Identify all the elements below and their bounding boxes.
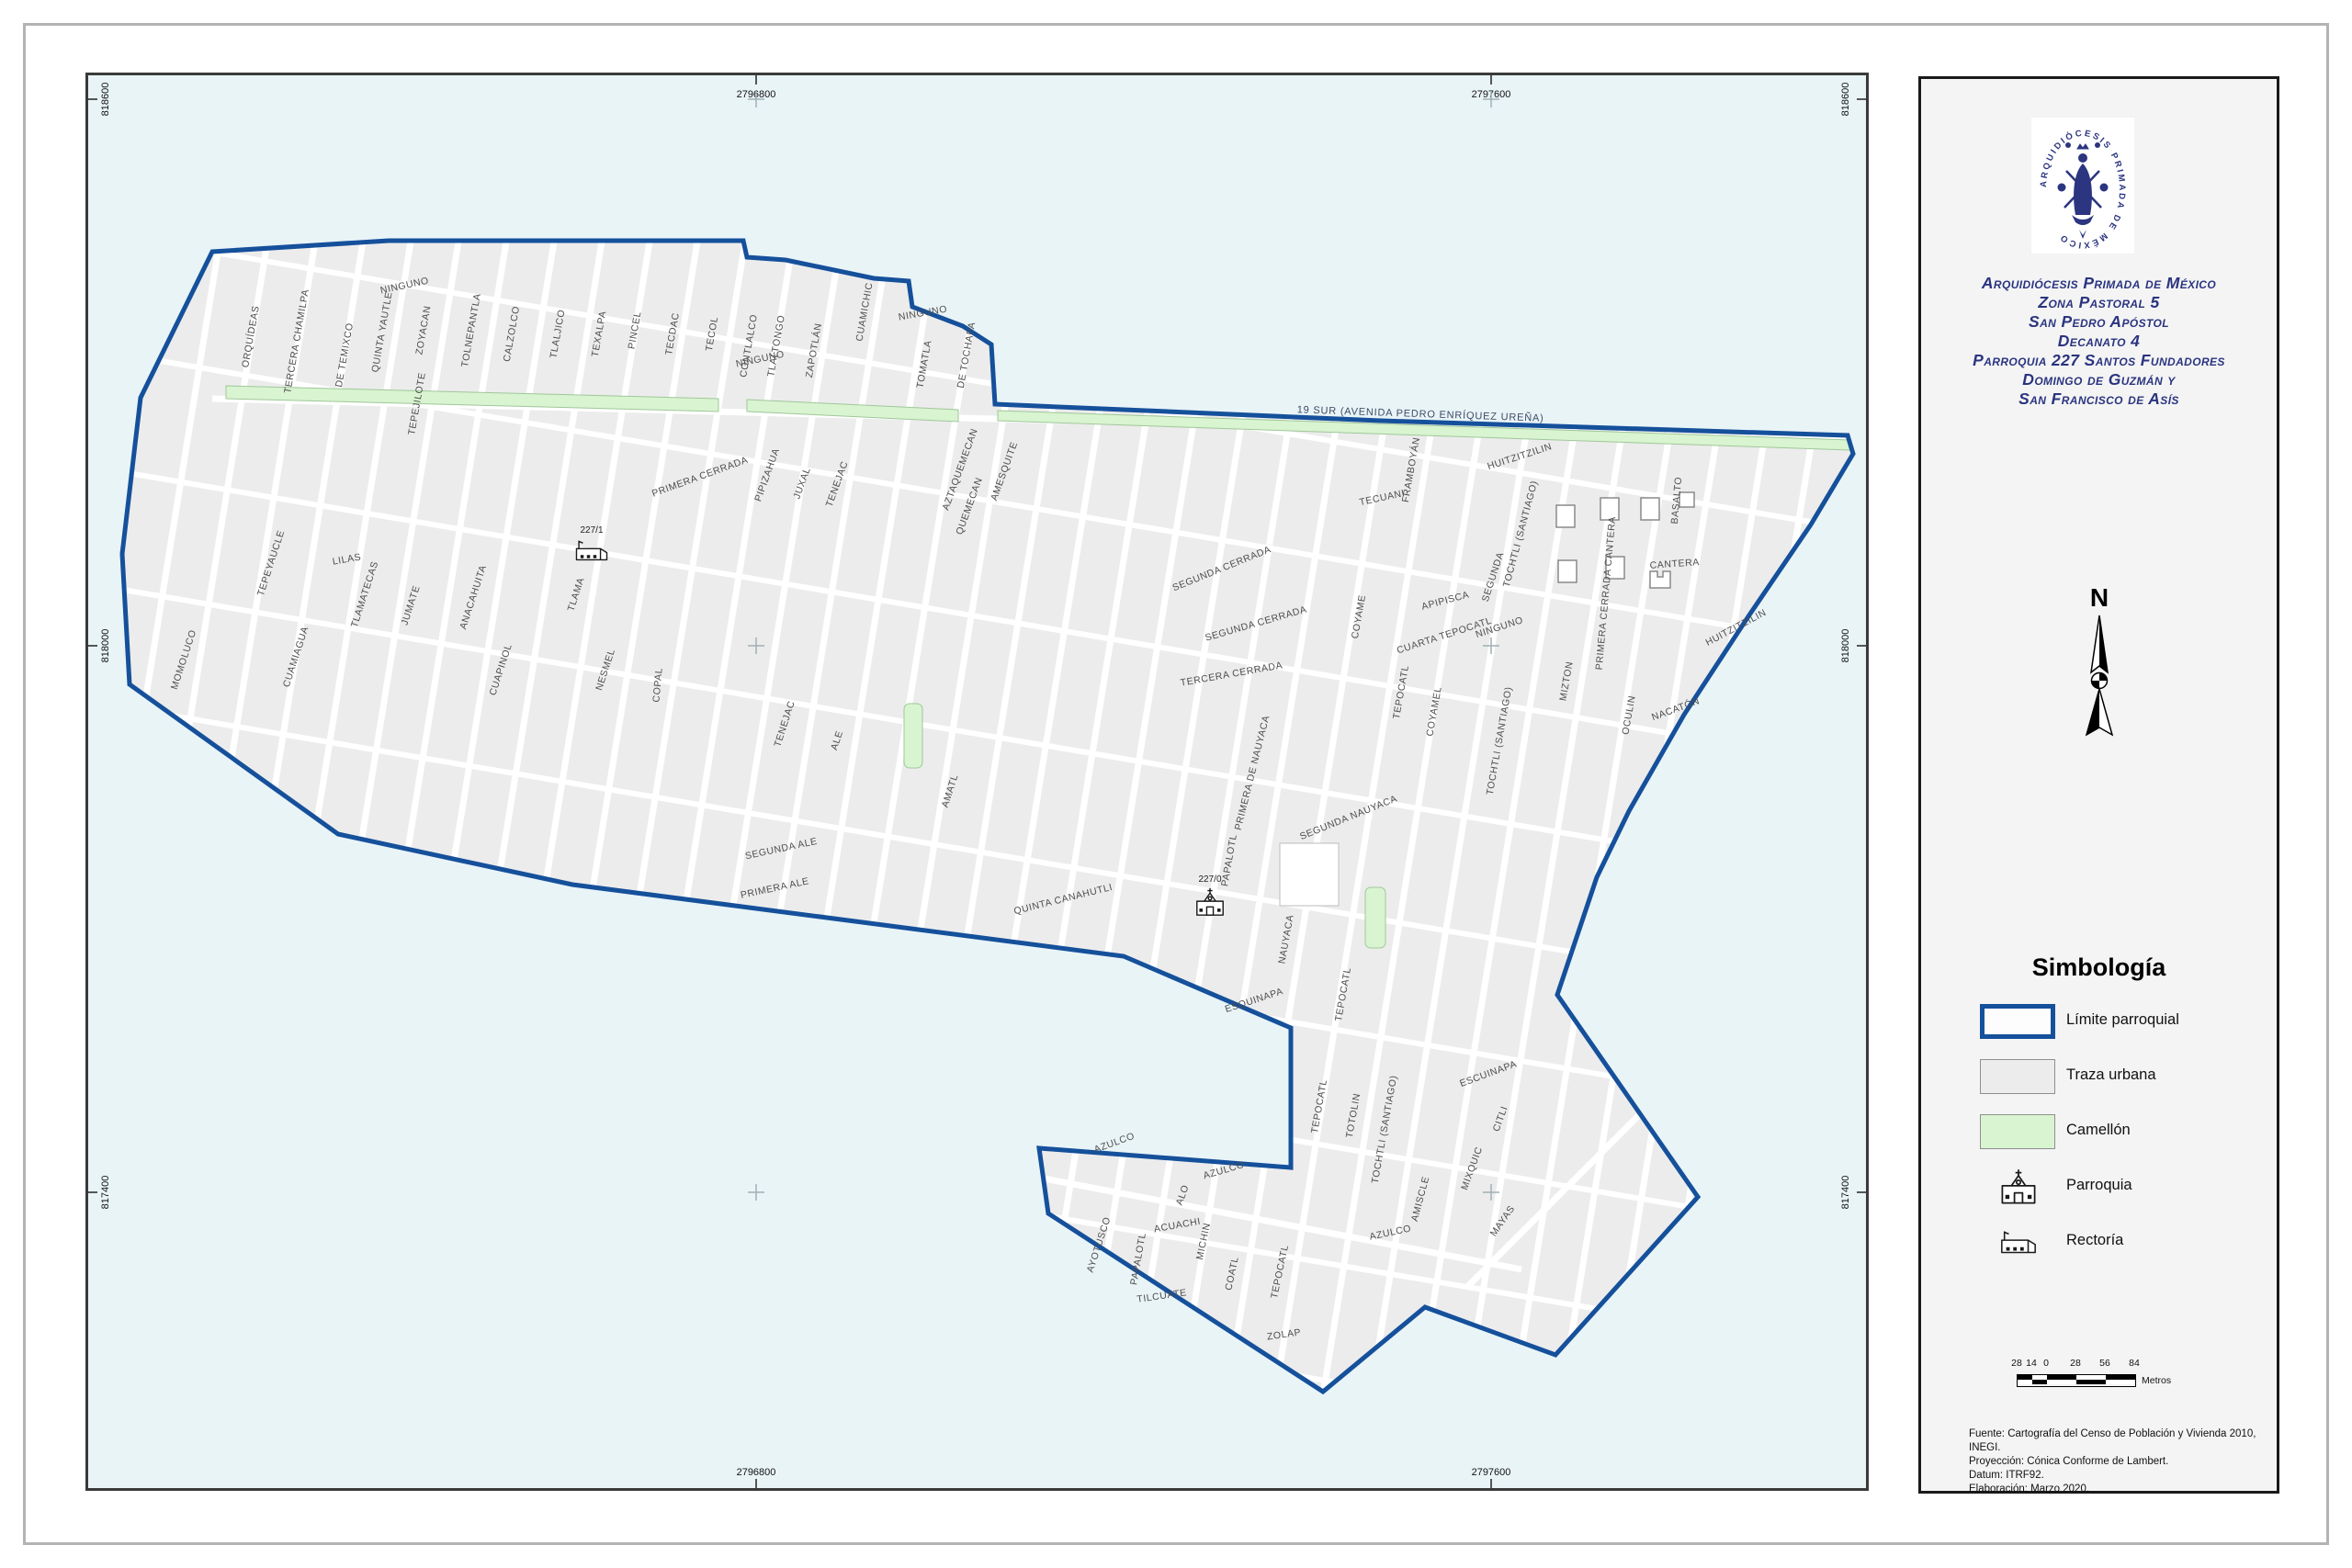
- scale-number: 84: [2129, 1358, 2140, 1369]
- camellon-swatch: [1980, 1114, 2055, 1149]
- legend-heading: Simbología: [1921, 953, 2277, 982]
- seal-figure: [2058, 142, 2109, 239]
- source-line: Proyección: Cónica Conforme de Lambert.: [1969, 1455, 2263, 1469]
- rectoria-code: 227/1: [580, 525, 603, 536]
- seal-graphic: ARQUIDIÓCESIS PRIMADA DE MÉXICO: [2031, 118, 2134, 254]
- title-line: San Francisco de Asís: [1921, 389, 2277, 409]
- archdiocese-seal: ARQUIDIÓCESIS PRIMADA DE MÉXICO: [2031, 118, 2134, 254]
- source-line: Fuente: Cartografía del Censo de Poblaci…: [1969, 1427, 2263, 1455]
- legend-item-rectoria: Rectoría: [1921, 1223, 2277, 1269]
- scale-number: 28: [2070, 1358, 2081, 1369]
- north-arrow-glyph: [2086, 615, 2112, 735]
- map-title: Arquidiócesis Primada de México Zona Pas…: [1921, 274, 2277, 409]
- grid-label-left: 817400: [100, 1176, 111, 1210]
- legend-item-traza: Traza urbana: [1921, 1057, 2277, 1103]
- scale-unit: Metros: [2142, 1375, 2171, 1386]
- rectoria-legend-icon: [1998, 1223, 2039, 1261]
- grid-label-bottom: 2797600: [1472, 1467, 1511, 1478]
- grid-label-left: 818600: [100, 83, 111, 117]
- title-line: Domingo de Guzmán y: [1921, 370, 2277, 389]
- north-arrow: N: [1921, 582, 2277, 743]
- legend-label: Límite parroquial: [2066, 1011, 2179, 1029]
- legend-label: Rectoría: [2066, 1232, 2123, 1249]
- title-line: Arquidiócesis Primada de México: [1921, 274, 2277, 293]
- legend-item-parroquia: Parroquia: [1921, 1168, 2277, 1213]
- legend-label: Parroquia: [2066, 1177, 2132, 1194]
- scale-bar-graphic: [2017, 1374, 2136, 1387]
- legend-item-camellon: Camellón: [1921, 1112, 2277, 1158]
- grid-label-bottom: 2796800: [737, 1467, 776, 1478]
- title-line: Zona Pastoral 5: [1921, 293, 2277, 312]
- title-line: Decanato 4: [1921, 332, 2277, 351]
- traza-swatch: [1980, 1059, 2055, 1094]
- info-panel: ARQUIDIÓCESIS PRIMADA DE MÉXICO Arquidió…: [1918, 76, 2279, 1494]
- legend-item-limite: Límite parroquial: [1921, 1002, 2277, 1048]
- street-label: TILCUATE: [1136, 1287, 1188, 1305]
- parroquia-legend-icon: [1998, 1168, 2039, 1206]
- north-label: N: [2089, 583, 2108, 612]
- scale-numbers: 28 14 0 28 56 84: [2017, 1358, 2134, 1371]
- source-notes: Fuente: Cartografía del Censo de Poblaci…: [1969, 1427, 2263, 1496]
- scale-number: 0: [2043, 1358, 2049, 1369]
- title-line: Parroquia 227 Santos Fundadores: [1921, 351, 2277, 370]
- grid-label-right: 818600: [1840, 83, 1851, 117]
- street-label: AZULCO: [1092, 1131, 1136, 1156]
- legend-label: Camellón: [2066, 1122, 2131, 1139]
- scale-number: 28: [2011, 1358, 2022, 1369]
- legend: Simbología Límite parroquial Traza urban…: [1921, 953, 2277, 1278]
- parish-map[interactable]: 2796800279680027976002797600818600818600…: [88, 75, 1866, 1488]
- page: { "map": { "background": "#e9f4f7", "urb…: [0, 0, 2352, 1568]
- source-line: Datum: ITRF92.: [1969, 1469, 2263, 1483]
- grid-label-right: 817400: [1840, 1176, 1851, 1210]
- source-line: Elaboración: Marzo 2020.: [1969, 1483, 2263, 1496]
- scale-number: 14: [2026, 1358, 2037, 1369]
- scale-number: 56: [2099, 1358, 2110, 1369]
- parroquia-code: 227/0: [1198, 874, 1221, 885]
- limite-swatch: [1980, 1004, 2055, 1039]
- grid-label-right: 818000: [1840, 629, 1851, 663]
- map-frame: 2796800279680027976002797600818600818600…: [85, 73, 1869, 1491]
- title-line: San Pedro Apóstol: [1921, 312, 2277, 332]
- grid-label-left: 818000: [100, 629, 111, 663]
- legend-label: Traza urbana: [2066, 1066, 2156, 1084]
